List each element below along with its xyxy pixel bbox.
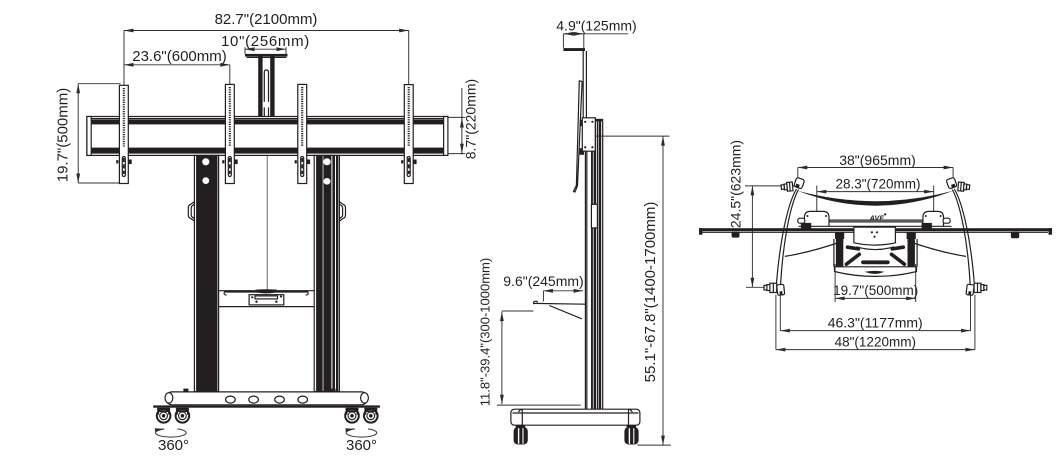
svg-text:23.6"(600mm): 23.6"(600mm) bbox=[132, 48, 227, 65]
svg-text:48"(1220mm): 48"(1220mm) bbox=[835, 335, 916, 350]
svg-text:9.6"(245mm): 9.6"(245mm) bbox=[503, 273, 583, 289]
svg-text:360°: 360° bbox=[346, 437, 377, 454]
svg-text:24.5"(623mm): 24.5"(623mm) bbox=[728, 140, 744, 228]
svg-text:360°: 360° bbox=[158, 437, 189, 454]
svg-text:11.8"-39.4"(300-1000mm): 11.8"-39.4"(300-1000mm) bbox=[478, 258, 493, 406]
svg-text:28.3"(720mm): 28.3"(720mm) bbox=[835, 176, 920, 191]
svg-text:8.7"(220mm): 8.7"(220mm) bbox=[463, 79, 479, 159]
svg-text:19.7"(500mm): 19.7"(500mm) bbox=[55, 88, 72, 183]
svg-text:38"(965mm): 38"(965mm) bbox=[839, 152, 916, 168]
svg-text:AVF: AVF bbox=[869, 214, 885, 223]
svg-text:10"(256mm): 10"(256mm) bbox=[221, 33, 310, 50]
svg-text:82.7"(2100mm): 82.7"(2100mm) bbox=[215, 11, 318, 28]
svg-text:55.1"-67.8"(1400-1700mm): 55.1"-67.8"(1400-1700mm) bbox=[642, 202, 659, 383]
svg-text:4.9"(125mm): 4.9"(125mm) bbox=[556, 18, 636, 34]
svg-text:46.3"(1177mm): 46.3"(1177mm) bbox=[828, 315, 923, 331]
svg-text:19.7"(500mm): 19.7"(500mm) bbox=[833, 283, 918, 298]
